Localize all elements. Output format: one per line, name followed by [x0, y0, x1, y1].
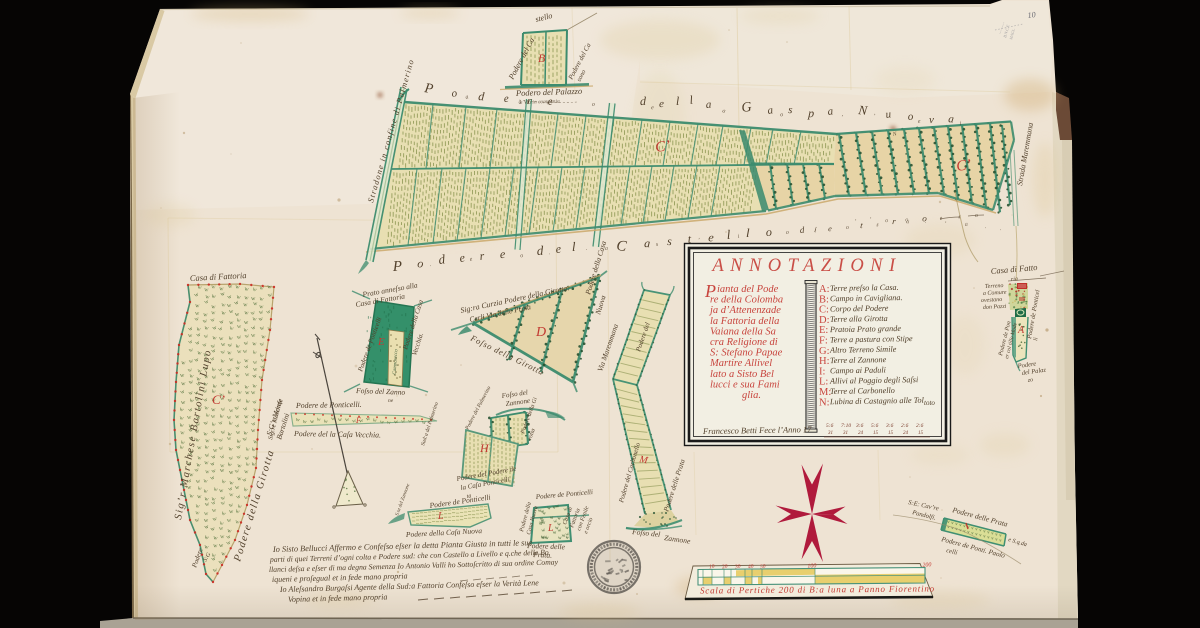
svg-text:3:6: 3:6 — [855, 423, 864, 429]
svg-text:24: 24 — [858, 431, 864, 436]
svg-text:cra Religione di: cra Religione di — [710, 337, 778, 348]
svg-text:w: w — [338, 417, 343, 423]
svg-text:w: w — [229, 470, 234, 476]
svg-text:P: P — [704, 281, 716, 301]
svg-text:15: 15 — [873, 431, 879, 436]
svg-text:Lubina di Castagnio alle Tol: Lubina di Castagnio alle Tol — [829, 396, 925, 407]
svg-text:15: 15 — [918, 431, 924, 436]
svg-text:w: w — [180, 373, 185, 379]
svg-text:15: 15 — [888, 431, 894, 436]
svg-text:w: w — [219, 543, 224, 549]
svg-text:.: . — [985, 224, 987, 230]
svg-text:31: 31 — [828, 431, 833, 436]
svg-text:100: 100 — [807, 563, 816, 569]
svg-text:o: o — [846, 225, 849, 231]
svg-text:w: w — [229, 509, 234, 515]
svg-text:Martire Allivel: Martire Allivel — [709, 358, 772, 369]
svg-text:31: 31 — [843, 431, 848, 436]
svg-text:w: w — [245, 372, 250, 378]
svg-text:Podere del la Caſa Vecchia.: Podere del la Caſa Vecchia. — [293, 429, 381, 440]
svg-text:e: e — [503, 93, 509, 105]
svg-text:s: s — [667, 234, 672, 248]
svg-text:w: w — [229, 408, 234, 414]
svg-text:w: w — [251, 333, 256, 339]
svg-text:ianta del Pode: ianta del Pode — [717, 284, 779, 295]
svg-text:24: 24 — [903, 431, 909, 436]
svg-text:o: o — [786, 230, 789, 236]
svg-text:Terreno: Terreno — [985, 283, 1004, 290]
svg-text:glia.: glia. — [742, 390, 761, 401]
svg-text:toto: toto — [924, 399, 935, 407]
svg-text:Terre preſso la Casa.: Terre preſso la Casa. — [830, 283, 899, 293]
svg-text:don Pazzi: don Pazzi — [983, 304, 1007, 311]
svg-text:Campo ai Paduli: Campo ai Paduli — [830, 365, 887, 375]
svg-text:o: o — [885, 218, 888, 224]
svg-text:l: l — [572, 239, 576, 254]
svg-text:w: w — [555, 526, 559, 531]
svg-text:P: P — [392, 259, 403, 275]
svg-text:N:: N: — [819, 397, 830, 408]
svg-text:Altro Terreno Simile: Altro Terreno Simile — [829, 345, 897, 355]
svg-text:l: l — [746, 225, 750, 240]
svg-text:D: D — [535, 325, 546, 340]
svg-text:w: w — [310, 419, 314, 425]
svg-text:a: a — [644, 236, 651, 250]
svg-text:o: o — [592, 102, 595, 108]
svg-text:e: e — [659, 98, 664, 110]
svg-text:ovestano: ovestano — [981, 297, 1003, 304]
svg-text:w: w — [181, 400, 186, 406]
svg-text:5:6: 5:6 — [871, 423, 879, 429]
svg-text:w: w — [251, 390, 256, 396]
svg-text:lucci e sua Fami: lucci e sua Fami — [710, 379, 780, 390]
svg-text:L: L — [437, 511, 444, 522]
svg-text:a Comure: a Comure — [983, 290, 1007, 297]
svg-text:Terre al Zannone: Terre al Zannone — [830, 355, 887, 365]
svg-text:Terre al Carbonello: Terre al Carbonello — [830, 386, 895, 396]
svg-text:Francesco Betti Fece l’Anno 17: Francesco Betti Fece l’Anno 17 — [702, 424, 812, 436]
svg-text:E: E — [377, 336, 385, 348]
svg-text:50: 50 — [760, 564, 767, 571]
svg-text:ne: ne — [388, 398, 394, 404]
svg-text:Cʼ: Cʼ — [212, 392, 225, 407]
svg-text:’: ’ — [841, 115, 843, 121]
svg-text:30: 30 — [734, 564, 742, 571]
svg-text:F: F — [355, 416, 361, 425]
svg-text:200: 200 — [922, 562, 931, 568]
svg-text:w: w — [229, 309, 234, 315]
svg-text:Allivi al Poggio degli Saſsi: Allivi al Poggio degli Saſsi — [829, 375, 919, 386]
svg-text:lato a Sisto Bel: lato a Sisto Bel — [710, 369, 774, 380]
svg-text:G: G — [741, 100, 753, 116]
svg-text:Foſso del Zanno: Foſso del Zanno — [355, 386, 406, 397]
svg-text:s: s — [788, 104, 793, 116]
svg-text:Corpo del Podere: Corpo del Podere — [830, 304, 889, 314]
svg-text:w: w — [422, 420, 427, 426]
svg-text:d: d — [536, 243, 544, 258]
svg-text:5:6: 5:6 — [826, 423, 834, 429]
svg-text:7:10: 7:10 — [841, 423, 851, 429]
svg-text:e: e — [500, 247, 506, 261]
svg-text:w: w — [244, 320, 249, 326]
svg-text:20: 20 — [722, 564, 729, 571]
svg-text:ria: ria — [1011, 276, 1019, 283]
svg-text:Scala di Pertiche 200 di B:a l: Scala di Pertiche 200 di B:a luna a Pann… — [700, 583, 935, 595]
svg-text:Vaiana della Sa: Vaiana della Sa — [710, 326, 776, 337]
svg-text:ANNOTAZIONI: ANNOTAZIONI — [710, 256, 901, 276]
svg-text:S: Stefano Papae: S: Stefano Papae — [710, 348, 783, 359]
svg-text:H: H — [479, 441, 490, 455]
svg-text:w: w — [204, 511, 209, 517]
svg-text:w: w — [380, 419, 384, 425]
svg-text:2:6: 2:6 — [916, 423, 924, 429]
svg-text:la Fattoria della: la Fattoria della — [710, 316, 779, 327]
svg-text:re della Colomba: re della Colomba — [710, 295, 783, 306]
svg-text:v: v — [929, 114, 934, 126]
svg-text:10: 10 — [709, 564, 716, 571]
svg-text:Terre alla Girotta: Terre alla Girotta — [830, 314, 888, 324]
svg-text:10: 10 — [1027, 10, 1036, 20]
svg-text:Terre a pastura con Stipe: Terre a pastura con Stipe — [830, 334, 913, 344]
svg-text:w: w — [235, 485, 240, 491]
svg-text:A: A — [1017, 325, 1025, 336]
svg-text:L: L — [547, 523, 554, 534]
svg-text:w: w — [213, 448, 218, 454]
svg-text:w: w — [415, 418, 420, 424]
svg-text:zo: zo — [1026, 377, 1033, 384]
svg-text:Campo in Cavigliana.: Campo in Cavigliana. — [830, 293, 903, 303]
svg-text:3:6: 3:6 — [885, 423, 894, 429]
svg-text:Podere de Ponticelli.: Podere de Ponticelli. — [295, 400, 362, 410]
svg-text:o: o — [766, 225, 773, 239]
svg-text:Pratoia Prato grande: Pratoia Prato grande — [829, 324, 901, 334]
svg-text:2:6: 2:6 — [901, 423, 909, 429]
svg-text:Cʼ: Cʼ — [955, 157, 972, 175]
svg-text:B: B — [538, 51, 546, 65]
svg-text:ja d’Attenenzade: ja d’Attenenzade — [708, 305, 781, 316]
svg-text:w: w — [251, 428, 256, 434]
svg-text:Cʼ: Cʼ — [654, 138, 671, 156]
svg-text:w: w — [408, 418, 413, 424]
svg-text:p: p — [807, 106, 815, 120]
svg-text:w: w — [221, 342, 226, 348]
svg-text:o: o — [975, 213, 978, 219]
